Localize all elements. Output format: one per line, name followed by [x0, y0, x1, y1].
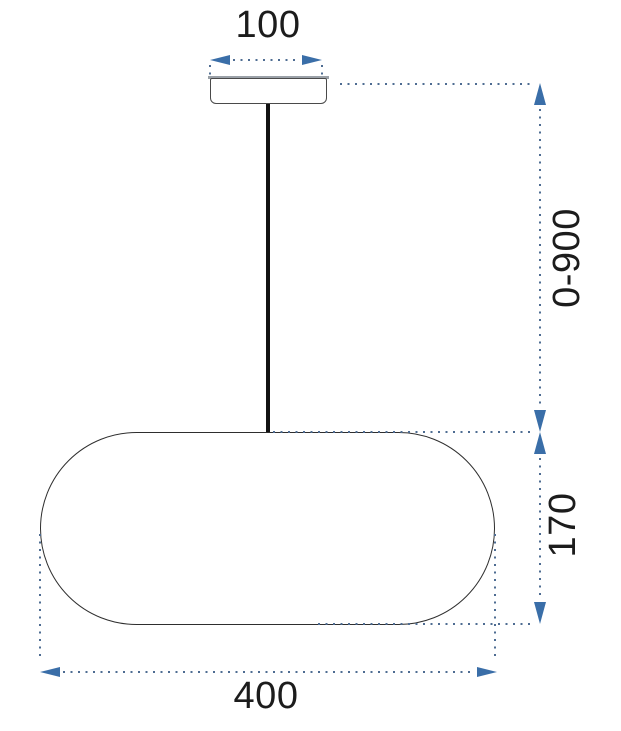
arrow-left-icon	[210, 55, 230, 65]
dimension-dotted-line-suspension-drop	[539, 109, 541, 408]
extension-dotted-line-shade-top	[273, 431, 533, 433]
ceiling-canopy	[210, 78, 327, 104]
arrow-up-icon	[534, 432, 546, 454]
suspension-cable	[266, 104, 270, 433]
dimension-dotted-line-shade-height	[539, 458, 541, 600]
extension-dotted-line-shade-bottom	[318, 623, 533, 625]
extension-dotted-line-shade-left	[39, 534, 41, 660]
arrow-down-icon	[534, 410, 546, 432]
extension-dotted-line-canopy-level	[340, 83, 534, 85]
dimension-label-suspension-drop: 0-900	[547, 178, 587, 338]
dimension-dotted-line-canopy-width	[233, 59, 299, 61]
dimension-label-canopy-width: 100	[210, 5, 326, 45]
dimension-diagram-canvas: 100 0-900 170 400	[0, 0, 621, 731]
dimension-label-shade-width: 400	[208, 676, 324, 716]
extension-dotted-line-shade-right	[494, 534, 496, 660]
lampshade-outline	[40, 432, 495, 625]
dimension-label-shade-height: 170	[543, 467, 583, 583]
dimension-dotted-line-shade-width	[63, 671, 475, 673]
arrow-right-icon	[302, 55, 322, 65]
arrow-up-icon	[534, 83, 546, 105]
arrow-right-icon	[477, 667, 497, 677]
arrow-down-icon	[534, 602, 546, 624]
arrow-left-icon	[40, 667, 60, 677]
